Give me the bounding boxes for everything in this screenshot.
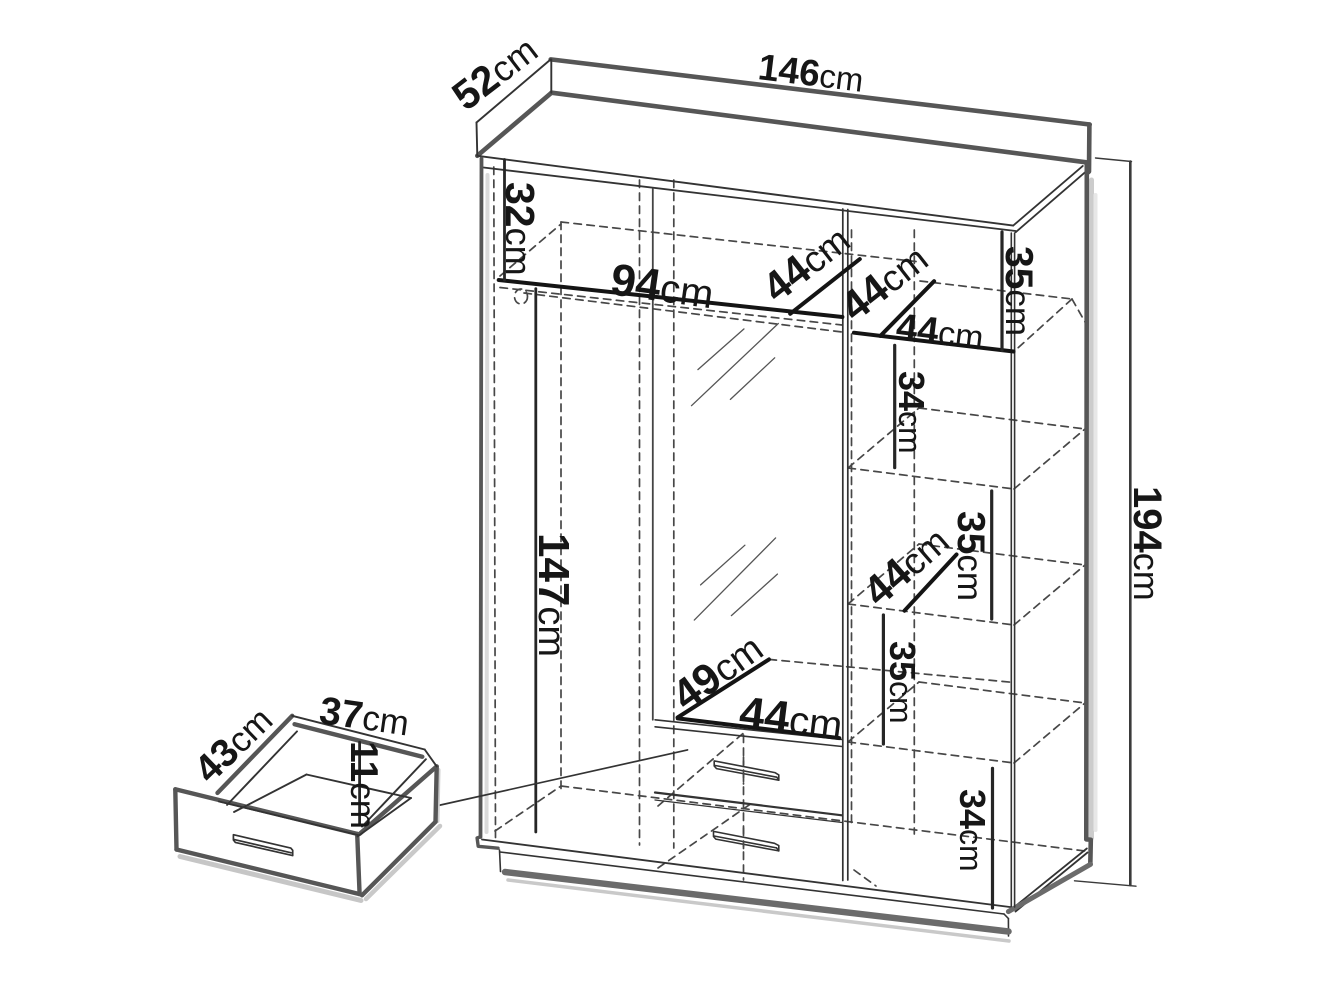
svg-text:44cm: 44cm [894,306,986,358]
svg-text:34cm: 34cm [952,789,993,872]
svg-text:44cm: 44cm [854,516,957,614]
svg-text:34cm: 34cm [891,371,932,454]
svg-text:146cm: 146cm [756,46,866,100]
svg-text:147cm: 147cm [529,533,578,657]
svg-text:94cm: 94cm [608,253,717,318]
svg-text:35cm: 35cm [949,511,992,601]
svg-text:35cm: 35cm [882,641,923,724]
svg-text:44cm: 44cm [737,686,846,749]
svg-text:32cm: 32cm [497,182,543,276]
svg-text:194cm: 194cm [1125,486,1169,601]
svg-text:52cm: 52cm [443,26,545,119]
svg-text:35cm: 35cm [997,246,1040,336]
svg-text:37cm: 37cm [317,689,412,744]
svg-text:11cm: 11cm [342,741,385,829]
